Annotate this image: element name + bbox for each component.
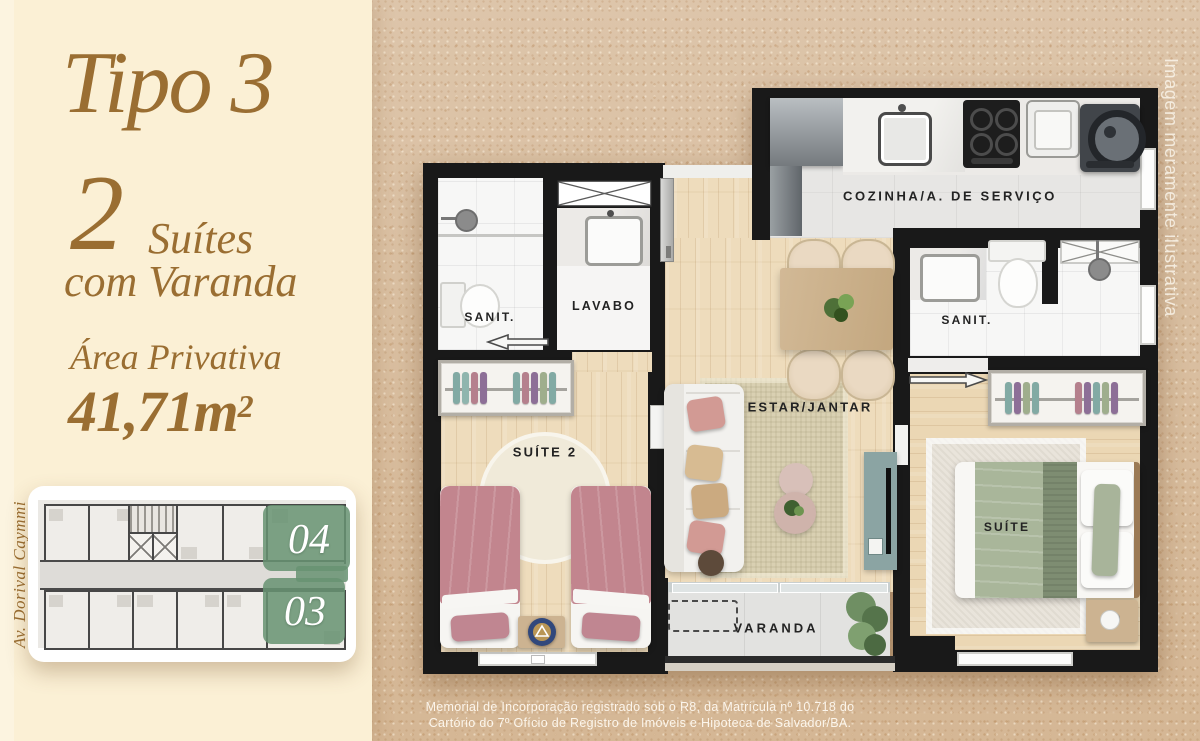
window-kitchen: [1140, 148, 1156, 210]
disclaimer-line2: Cartório do 7º Ofício de Registro de Imó…: [330, 716, 950, 732]
ac-condenser-dashed-area: [668, 600, 738, 632]
watermark-vertical: Imagem meramente ilustrativa: [1160, 58, 1181, 358]
suite2-bed: [571, 486, 651, 648]
legal-disclaimer: Memorial de Incorporação registrado sob …: [330, 700, 950, 731]
washing-machine: [1080, 104, 1140, 172]
suite2-wardrobe: [438, 360, 574, 416]
door-swing-arrow-left: [486, 334, 550, 350]
tv-shelf-frame: [868, 538, 883, 555]
room-label-varanda: VARANDA: [733, 621, 818, 636]
sofa-pillow: [686, 395, 727, 432]
dining-chair: [787, 349, 841, 401]
lavabo-sink: [585, 216, 643, 266]
lavabo-faucet: [607, 210, 614, 217]
varanda-slab: [665, 663, 895, 671]
suite-wardrobe: [988, 370, 1146, 426]
sofa-pillow: [684, 444, 724, 482]
wall-kitchen-left: [752, 88, 770, 240]
suite-door-opening: [908, 358, 988, 372]
entry-threshold: [663, 165, 752, 178]
window-suite: [957, 652, 1073, 666]
room-label-cozinha: COZINHA/A. DE SERVIÇO: [843, 189, 1057, 204]
suite-nightstand: [1086, 600, 1138, 642]
kitchen-sink: [878, 112, 932, 166]
suite2-entry-opening: [572, 352, 652, 372]
shower-head-icon: [1088, 258, 1111, 281]
shower-glass-divider: [438, 234, 543, 237]
room-label-estar-jantar: ESTAR/JANTAR: [748, 400, 873, 415]
laundry-tank: [1026, 100, 1080, 158]
varanda-railing: [665, 656, 895, 663]
dining-chair: [841, 349, 895, 401]
shower-head-icon: [455, 209, 478, 232]
room-label-sanit-left: SANIT.: [464, 310, 515, 324]
sofa-pillow: [691, 482, 730, 519]
entry-door-handle: [666, 246, 671, 258]
cooktop: [963, 100, 1020, 168]
coffee-table-plant: [794, 506, 804, 516]
kitchen-stainless-cabinet: [770, 98, 843, 166]
disclaimer-line1: Memorial de Incorporação registrado sob …: [330, 700, 950, 716]
tv-panel: [864, 452, 897, 570]
window-handle: [531, 655, 545, 664]
floorplan: SANIT. LAVABO COZINHA/A. DE SERVIÇO SANI…: [0, 0, 1200, 741]
varanda-plant: [864, 634, 886, 656]
marketing-floorplan-poster: Tipo 3 2 Suítes com Varanda Área Privati…: [0, 0, 1200, 741]
wall-suite-step: [893, 636, 955, 672]
suite-bed: [955, 462, 1140, 598]
toilet-bowl: [998, 258, 1038, 308]
room-label-lavabo: LAVABO: [572, 299, 636, 313]
varanda-glass-doors: [668, 582, 890, 592]
table-plant: [834, 308, 848, 322]
room-label-sanit-right: SANIT.: [941, 313, 992, 327]
window-bath-right: [1140, 285, 1156, 345]
door-swing-arrow-right: [908, 372, 988, 388]
pouf: [698, 550, 724, 576]
suite2-bed: [440, 486, 520, 648]
kitchen-fridge: [770, 166, 802, 236]
kitchen-faucet: [898, 104, 906, 112]
tv-icon: [886, 468, 891, 554]
duct-shaft-icon: [557, 180, 652, 207]
room-label-suite2: SUÍTE 2: [513, 445, 578, 460]
brand-logo-disc: [528, 618, 556, 646]
room-label-suite: SUÍTE: [984, 520, 1030, 534]
bath-right-sink: [920, 254, 980, 302]
